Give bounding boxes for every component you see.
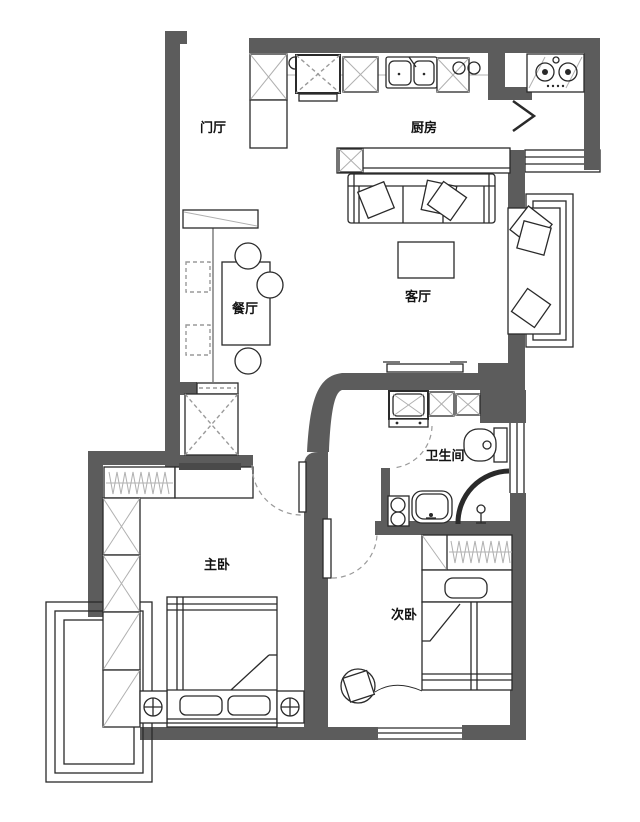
living-label: 客厅 — [405, 289, 431, 305]
shelf-icon — [183, 210, 258, 228]
bench-cushion-icon — [186, 325, 210, 355]
second-bed-icon — [422, 570, 512, 690]
shower-head-icon — [476, 505, 486, 523]
chair-icon — [341, 669, 422, 703]
door-opening-icon — [513, 101, 534, 131]
nightstand-icon — [277, 691, 304, 723]
floor-plan-drawing: 门厅 厨房 餐厅 客厅 卫生间 主卧 次卧 — [0, 0, 640, 822]
kitchen-label: 厨房 — [411, 120, 437, 136]
floor-plan-page: 门厅 厨房 餐厅 客厅 卫生间 主卧 次卧 — [0, 0, 640, 822]
closet-hanging-icon — [104, 463, 253, 498]
double-sink-icon — [386, 57, 437, 88]
dining-label: 餐厅 — [231, 301, 258, 317]
dining-furniture — [183, 210, 283, 455]
master-bed-icon — [167, 597, 277, 727]
kitchen-cabinet-icon — [343, 57, 378, 92]
sofa-icon — [348, 174, 495, 223]
wardrobe-icon — [103, 498, 140, 727]
master-door — [252, 462, 306, 515]
shoe-cabinet-icon — [185, 383, 238, 455]
water-heater-icon — [388, 496, 409, 526]
wardrobe-icon — [422, 535, 512, 570]
gas-stove-icon — [527, 54, 584, 92]
bay-window-right — [508, 194, 573, 347]
coffee-table-icon — [398, 242, 454, 278]
kitchen-cabinet-icon — [437, 58, 469, 92]
second-bedroom-door — [323, 519, 377, 578]
master-furniture — [103, 463, 304, 727]
shower-enclosure-icon — [458, 471, 509, 524]
bench-cushion-icon — [186, 262, 210, 292]
bar-counter — [337, 148, 510, 173]
tv-cabinet-icon — [383, 362, 467, 372]
kitchen-furniture — [250, 54, 584, 173]
living-furniture — [348, 174, 495, 372]
oven-icon — [296, 55, 340, 101]
washing-machine-icon — [389, 391, 428, 427]
walls — [88, 31, 600, 740]
window-second-bedroom — [378, 727, 462, 740]
basin-icon — [412, 491, 452, 523]
bath-cabinet-icon — [429, 392, 480, 416]
dining-chair-icon — [257, 272, 283, 298]
entry-label: 门厅 — [200, 120, 226, 136]
nightstand-icon — [140, 691, 167, 723]
fridge-icon — [250, 54, 287, 148]
bathroom-label: 卫生间 — [425, 448, 464, 464]
dining-chair-icon — [235, 243, 261, 269]
window-bathroom — [508, 423, 528, 493]
master-bedroom-label: 主卧 — [204, 557, 230, 573]
second-bedroom-label: 次卧 — [391, 607, 417, 623]
toilet-icon — [464, 428, 507, 462]
second-furniture — [341, 535, 512, 703]
dining-chair-icon — [235, 348, 261, 374]
